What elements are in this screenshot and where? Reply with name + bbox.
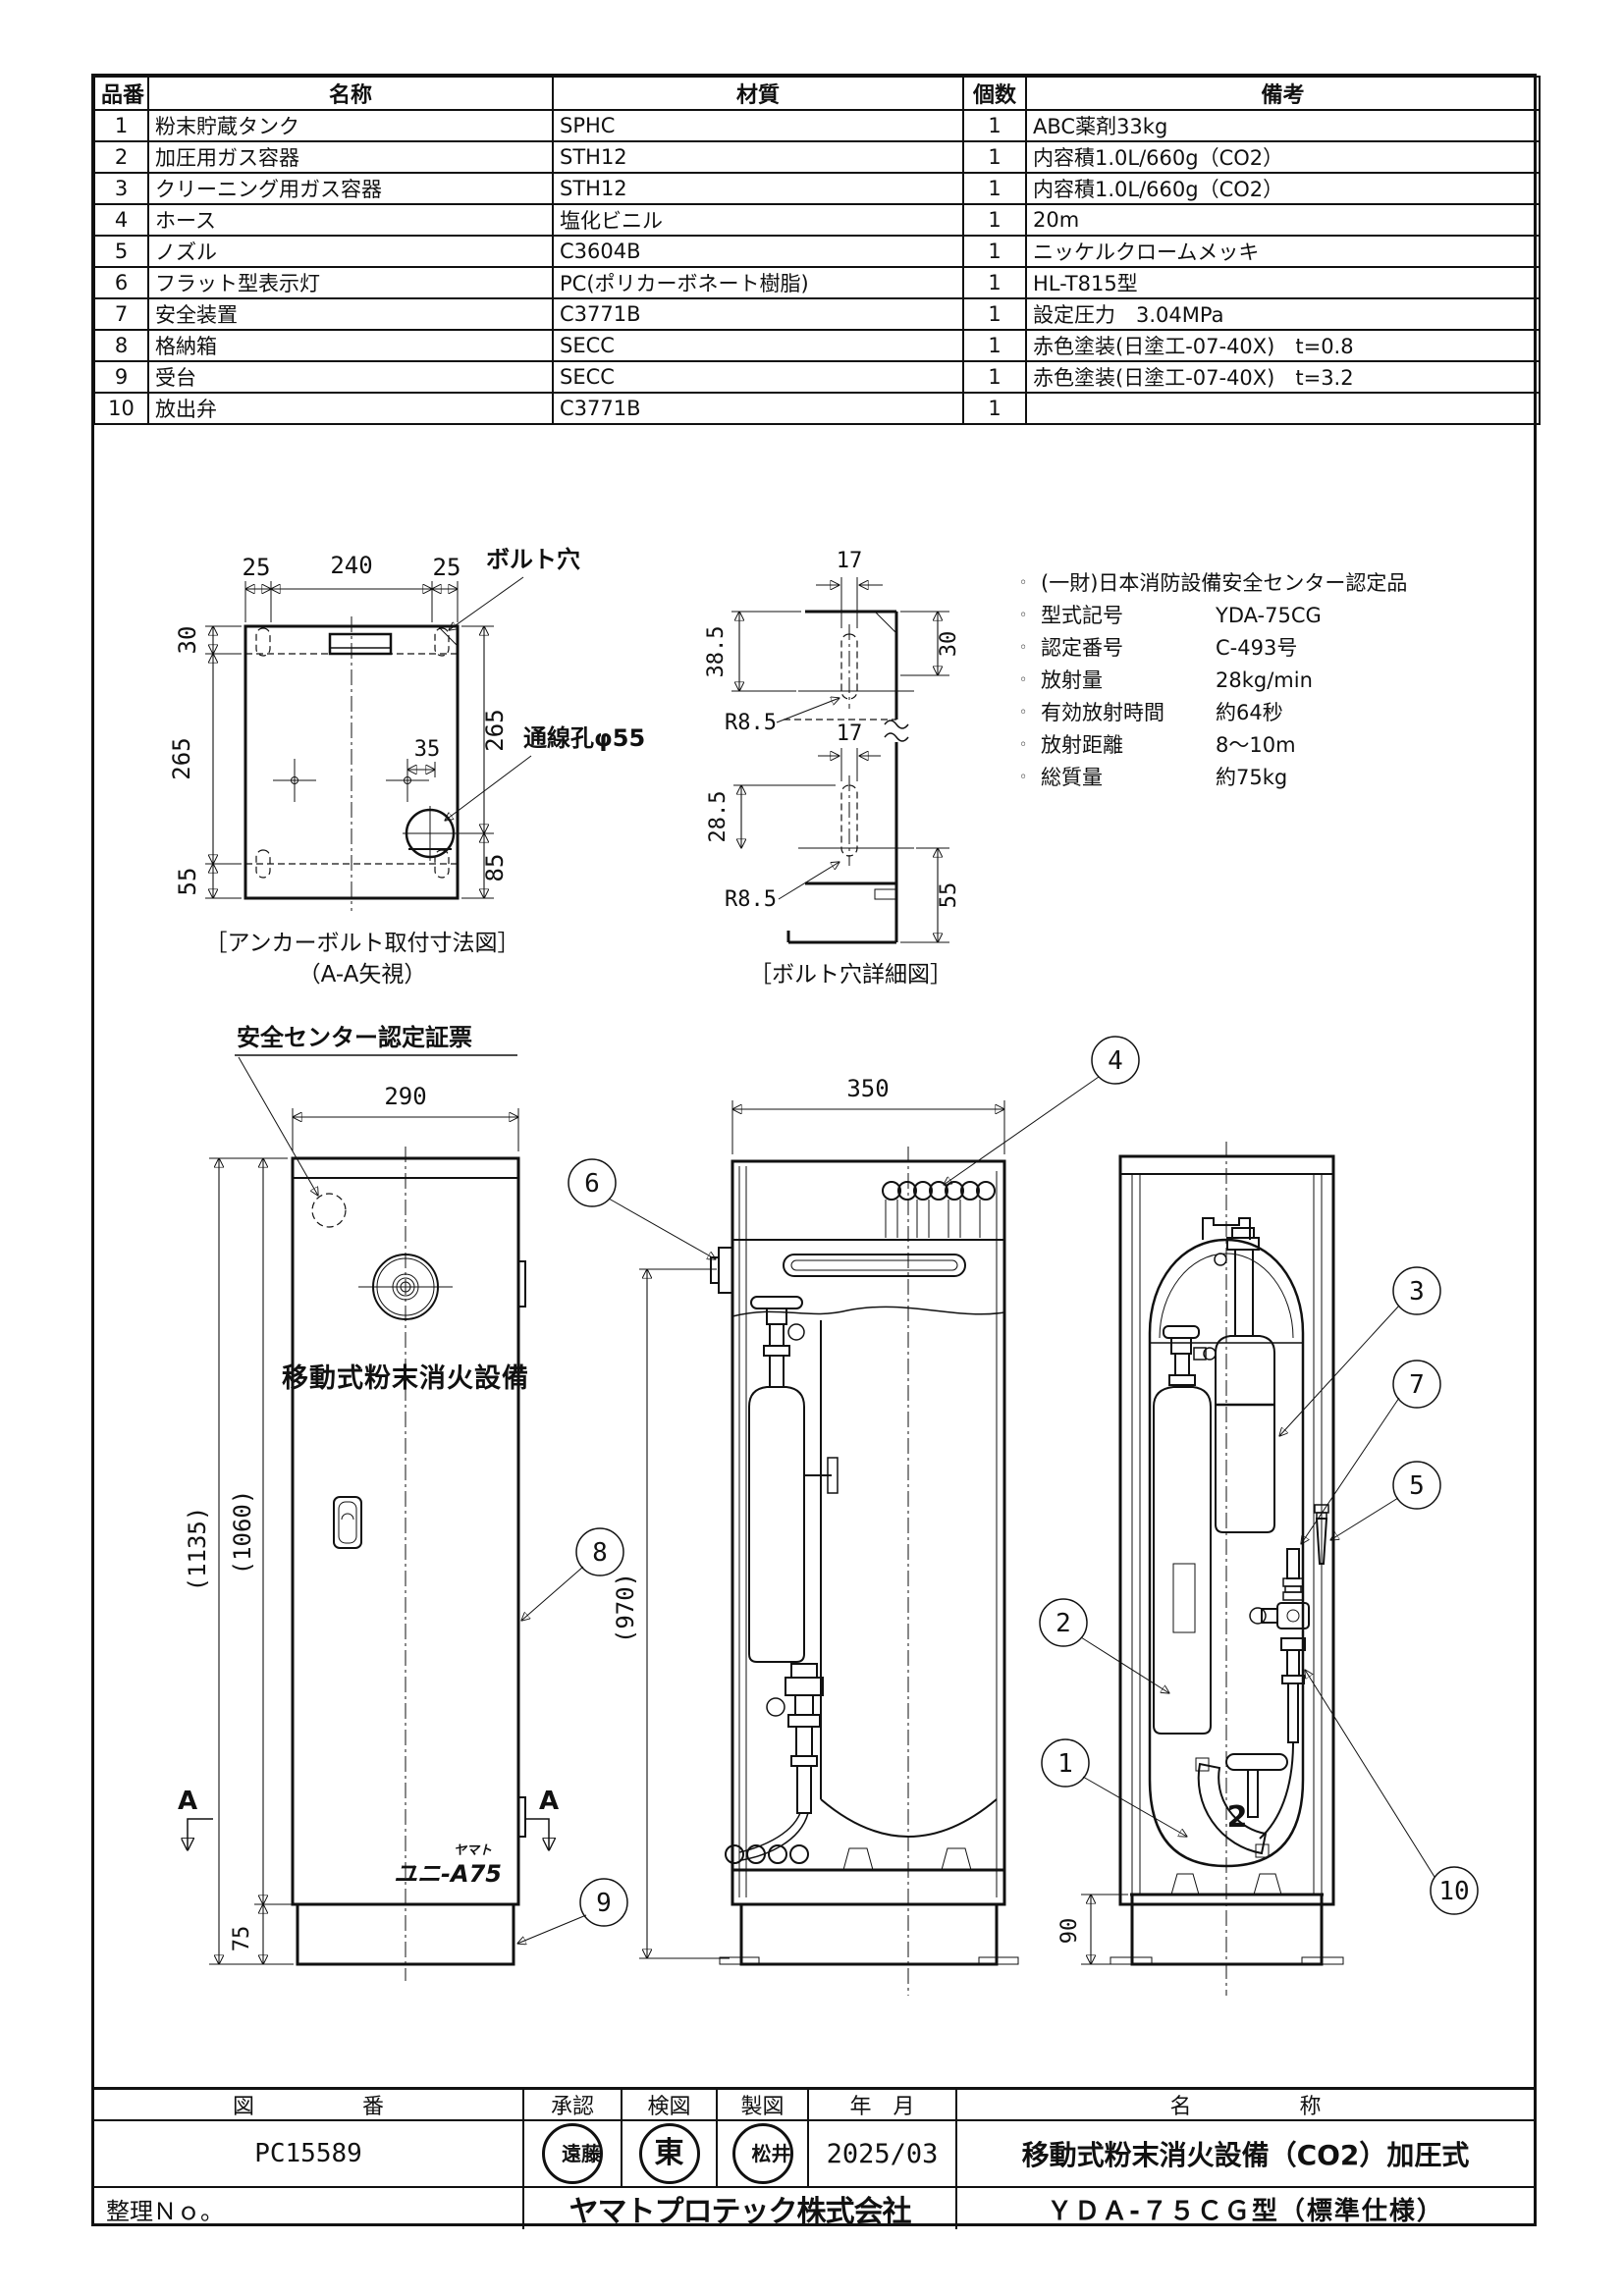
brand-logo: ヤマト ユニ-A75 xyxy=(394,1843,502,1888)
sheet-number: PC15589 xyxy=(94,2121,524,2186)
svg-text:ボルト穴: ボルト穴 xyxy=(486,546,580,573)
table-cell: 1 xyxy=(963,393,1026,424)
svg-text:6: 6 xyxy=(584,1169,600,1199)
table-row: 4ホース塩化ビニル120m xyxy=(94,204,1540,236)
svg-text:25: 25 xyxy=(433,554,461,581)
table-cell: 6 xyxy=(94,267,148,298)
hose-coil-top xyxy=(883,1182,995,1238)
table-cell: 1 xyxy=(963,236,1026,267)
table-cell: 20m xyxy=(1026,204,1540,236)
table-row: 9受台SECC1赤色塗装(日塗工-07-40X) t=3.2 xyxy=(94,361,1540,393)
table-cell: STH12 xyxy=(553,141,963,173)
bolt-hole-profile xyxy=(784,612,914,942)
svg-text:7: 7 xyxy=(1409,1370,1425,1400)
drawing-sheet-page: 品番名称材質個数備考 1粉末貯蔵タンクSPHC1ABC薬剤33kg2加圧用ガス容… xyxy=(0,0,1624,2296)
table-cell: 安全装置 xyxy=(148,298,553,330)
svg-text:35: 35 xyxy=(414,737,441,762)
company-name: ヤマトプロテック株式会社 xyxy=(524,2188,957,2229)
anchor-bolt-dimension-figure: 25 240 25 30 265 55 265 85 35 ボ xyxy=(140,538,690,999)
table-header-cell: 品番 xyxy=(94,77,148,110)
spec-value: 約64秒 xyxy=(1216,697,1283,729)
table-cell: 赤色塗装(日塗工-07-40X) t=0.8 xyxy=(1026,330,1540,361)
parts-table: 品番名称材質個数備考 1粉末貯蔵タンクSPHC1ABC薬剤33kg2加圧用ガス容… xyxy=(93,76,1541,425)
svg-text:75: 75 xyxy=(230,1926,254,1952)
indicator-light-side xyxy=(711,1248,732,1293)
table-cell: フラット型表示灯 xyxy=(148,267,553,298)
svg-text:17: 17 xyxy=(837,549,863,573)
table-cell: 8 xyxy=(94,330,148,361)
table-header-cell: 備考 xyxy=(1026,77,1540,110)
draft-seal: 松井 xyxy=(732,2123,793,2184)
table-cell: SECC xyxy=(553,361,963,393)
svg-text:(1060): (1060) xyxy=(229,1490,256,1575)
svg-text:265: 265 xyxy=(168,737,195,779)
title-block-header-row: 図 番 承認 検図 製図 年 月 名 称 xyxy=(94,2087,1534,2119)
wire-hole xyxy=(403,806,458,861)
table-row: 5ノズルC3604B1ニッケルクロームメッキ xyxy=(94,236,1540,267)
table-cell: 5 xyxy=(94,236,148,267)
title-block-bottom-row: 整理Ｎｏ。 ヤマトプロテック株式会社 ＹＤＡ-７５ＣＧ型（標準仕様） xyxy=(94,2186,1534,2229)
callout-8: 8 xyxy=(521,1528,623,1621)
table-cell: 7 xyxy=(94,298,148,330)
table-cell: 粉末貯蔵タンク xyxy=(148,110,553,141)
table-cell: 放出弁 xyxy=(148,393,553,424)
svg-text:28.5: 28.5 xyxy=(706,791,731,843)
svg-text:55: 55 xyxy=(174,868,201,896)
callout-1: 1 xyxy=(1042,1739,1187,1837)
title-block-header-zuban: 図 番 xyxy=(94,2090,524,2119)
svg-text:30: 30 xyxy=(174,626,201,655)
table-cell: SPHC xyxy=(553,110,963,141)
table-cell: 塩化ビニル xyxy=(553,204,963,236)
table-cell: SECC xyxy=(553,330,963,361)
table-cell: 加圧用ガス容器 xyxy=(148,141,553,173)
door-handle xyxy=(334,1497,361,1548)
table-cell: ニッケルクロームメッキ xyxy=(1026,236,1540,267)
svg-text:R8.5: R8.5 xyxy=(725,711,777,735)
table-cell: ノズル xyxy=(148,236,553,267)
table-cell: C3771B xyxy=(553,298,963,330)
hose-bottom-side xyxy=(726,1813,808,1863)
title-block-header-draft: 製図 xyxy=(718,2090,809,2119)
table-row: 7安全装置C3771B1設定圧力 3.04MPa xyxy=(94,298,1540,330)
nozzle-holder: 2 xyxy=(1196,1754,1287,1857)
table-cell: 設定圧力 3.04MPa xyxy=(1026,298,1540,330)
svg-text:17: 17 xyxy=(837,721,863,746)
table-cell: C3604B xyxy=(553,236,963,267)
svg-text:1: 1 xyxy=(1057,1749,1073,1779)
table-header-cell: 材質 xyxy=(553,77,963,110)
table-cell: 2 xyxy=(94,141,148,173)
table-cell: STH12 xyxy=(553,173,963,204)
svg-text:R8.5: R8.5 xyxy=(725,887,777,912)
table-cell: 1 xyxy=(94,110,148,141)
approval-stamp: 遠藤 xyxy=(524,2121,623,2186)
svg-text:5: 5 xyxy=(1409,1471,1425,1501)
table-cell xyxy=(1026,393,1540,424)
table-header-cell: 個数 xyxy=(963,77,1026,110)
title-block-header-check: 検図 xyxy=(623,2090,718,2119)
model-name: ＹＤＡ-７５ＣＧ型（標準仕様） xyxy=(957,2188,1534,2229)
spec-value: YDA-75CG xyxy=(1216,600,1322,632)
spec-value: 約75kg xyxy=(1216,762,1287,794)
callout-9: 9 xyxy=(517,1879,627,1944)
table-cell: 1 xyxy=(963,204,1026,236)
table-cell: 9 xyxy=(94,361,148,393)
svg-text:38.5: 38.5 xyxy=(704,626,729,678)
drawing-title: 移動式粉末消火設備（CO2）加圧式 xyxy=(957,2121,1534,2186)
parts-table-header-row: 品番名称材質個数備考 xyxy=(94,77,1540,110)
svg-text:30: 30 xyxy=(937,631,961,658)
table-cell: 3 xyxy=(94,173,148,204)
table-cell: ホース xyxy=(148,204,553,236)
svg-text:8: 8 xyxy=(592,1538,608,1568)
table-cell: 格納箱 xyxy=(148,330,553,361)
svg-text:290: 290 xyxy=(384,1083,426,1110)
svg-text:350: 350 xyxy=(846,1075,889,1102)
table-row: 3クリーニング用ガス容器STH121内容積1.0L/660g（CO2） xyxy=(94,173,1540,204)
draft-stamp: 松井 xyxy=(718,2121,809,2186)
check-seal: 東 xyxy=(639,2123,700,2184)
svg-text:（A-A矢視）: （A-A矢視） xyxy=(298,962,427,988)
callout-10: 10 xyxy=(1305,1670,1478,1914)
table-cell: 1 xyxy=(963,110,1026,141)
svg-text:2: 2 xyxy=(1056,1609,1071,1638)
svg-text:ヤマト: ヤマト xyxy=(454,1843,492,1858)
svg-text:90: 90 xyxy=(1057,1918,1082,1945)
table-cell: PC(ポリカーボネート樹脂) xyxy=(553,267,963,298)
table-cell: 10 xyxy=(94,393,148,424)
front-view: 安全センター認定証票 290 移動式粉末消火設備 xyxy=(178,1024,627,1981)
parts-table-body: 1粉末貯蔵タンクSPHC1ABC薬剤33kg2加圧用ガス容器STH121内容積1… xyxy=(94,110,1540,424)
svg-text:3: 3 xyxy=(1409,1277,1425,1307)
title-block-header-approve: 承認 xyxy=(524,2090,623,2119)
svg-text:55: 55 xyxy=(937,882,961,909)
table-cell: 4 xyxy=(94,204,148,236)
approval-seal: 遠藤 xyxy=(542,2123,603,2184)
table-row: 8格納箱SECC1赤色塗装(日塗工-07-40X) t=0.8 xyxy=(94,330,1540,361)
table-header-cell: 名称 xyxy=(148,77,553,110)
svg-text:安全センター認定証票: 安全センター認定証票 xyxy=(237,1024,472,1051)
svg-text:9: 9 xyxy=(596,1889,612,1918)
drawing-sheet-frame: 品番名称材質個数備考 1粉末貯蔵タンクSPHC1ABC薬剤33kg2加圧用ガス容… xyxy=(91,74,1537,2226)
table-cell: 1 xyxy=(963,298,1026,330)
svg-text:［ボルト穴詳細図］: ［ボルト穴詳細図］ xyxy=(749,962,952,988)
cleaning-cylinder xyxy=(1215,1228,1274,1532)
table-cell: 1 xyxy=(963,330,1026,361)
title-block-header-name: 名 称 xyxy=(957,2090,1534,2119)
svg-text:265: 265 xyxy=(481,709,509,751)
svg-text:通線孔φ55: 通線孔φ55 xyxy=(523,724,645,752)
table-cell: 1 xyxy=(963,173,1026,204)
bolt-hole-detail-figure: 17 38.5 30 R8.5 17 28.5 55 R8.5 xyxy=(690,538,1112,999)
svg-text:［アンカーボルト取付寸法図］: ［アンカーボルト取付寸法図］ xyxy=(204,931,519,956)
title-block-data-row: PC15589 遠藤 東 松井 2025/03 移動式粉末消火設備（CO2）加圧… xyxy=(94,2119,1534,2186)
spec-value: 28kg/min xyxy=(1216,665,1313,697)
equipment-views-drawing: 安全センター認定証票 290 移動式粉末消火設備 xyxy=(101,1014,1495,2069)
section-a-markers: A A xyxy=(178,1787,559,1850)
table-row: 2加圧用ガス容器STH121内容積1.0L/660g（CO2） xyxy=(94,141,1540,173)
gas-cylinder-side xyxy=(749,1297,838,1662)
svg-text:移動式粉末消火設備: 移動式粉末消火設備 xyxy=(282,1362,529,1394)
seiri-no-label: 整理Ｎｏ。 xyxy=(94,2188,524,2229)
svg-text:A: A xyxy=(539,1787,559,1816)
svg-text:ユニ-A75: ユニ-A75 xyxy=(394,1860,502,1888)
svg-text:25: 25 xyxy=(243,554,271,581)
table-row: 6フラット型表示灯PC(ポリカーボネート樹脂)1HL-T815型 xyxy=(94,267,1540,298)
callout-5: 5 xyxy=(1330,1462,1440,1540)
table-cell: ABC薬剤33kg xyxy=(1026,110,1540,141)
table-cell: 1 xyxy=(963,141,1026,173)
svg-text:240: 240 xyxy=(330,552,372,579)
table-cell: HL-T815型 xyxy=(1026,267,1540,298)
table-cell: 1 xyxy=(963,267,1026,298)
svg-text:(970): (970) xyxy=(612,1573,639,1643)
anchor-plate-outline xyxy=(245,616,458,911)
table-cell: C3771B xyxy=(553,393,963,424)
svg-text:2: 2 xyxy=(1227,1800,1248,1835)
table-cell: 赤色塗装(日塗工-07-40X) t=3.2 xyxy=(1026,361,1540,393)
svg-text:A: A xyxy=(178,1787,197,1816)
table-cell: 受台 xyxy=(148,361,553,393)
table-cell: クリーニング用ガス容器 xyxy=(148,173,553,204)
svg-text:4: 4 xyxy=(1108,1046,1123,1076)
pressurizing-cylinder xyxy=(1154,1326,1216,1734)
table-cell: 内容積1.0L/660g（CO2） xyxy=(1026,173,1540,204)
release-valve-side xyxy=(767,1664,823,1813)
callout-6: 6 xyxy=(568,1159,716,1259)
drawing-date: 2025/03 xyxy=(809,2121,957,2186)
svg-text:(1135): (1135) xyxy=(184,1507,211,1592)
svg-text:10: 10 xyxy=(1438,1877,1469,1906)
table-cell: 内容積1.0L/660g（CO2） xyxy=(1026,141,1540,173)
table-row: 10放出弁C3771B1 xyxy=(94,393,1540,424)
rear-view: 2 90 3 7 5 xyxy=(1040,1142,1478,1996)
svg-text:85: 85 xyxy=(481,854,509,882)
spec-value: 8～10m xyxy=(1216,729,1296,762)
spec-value: C-493号 xyxy=(1216,632,1297,665)
side-view: 350 xyxy=(568,1037,1139,1996)
table-row: 1粉末貯蔵タンクSPHC1ABC薬剤33kg xyxy=(94,110,1540,141)
check-stamp: 東 xyxy=(623,2121,718,2186)
table-cell: 1 xyxy=(963,361,1026,393)
title-block-header-date: 年 月 xyxy=(809,2090,957,2119)
